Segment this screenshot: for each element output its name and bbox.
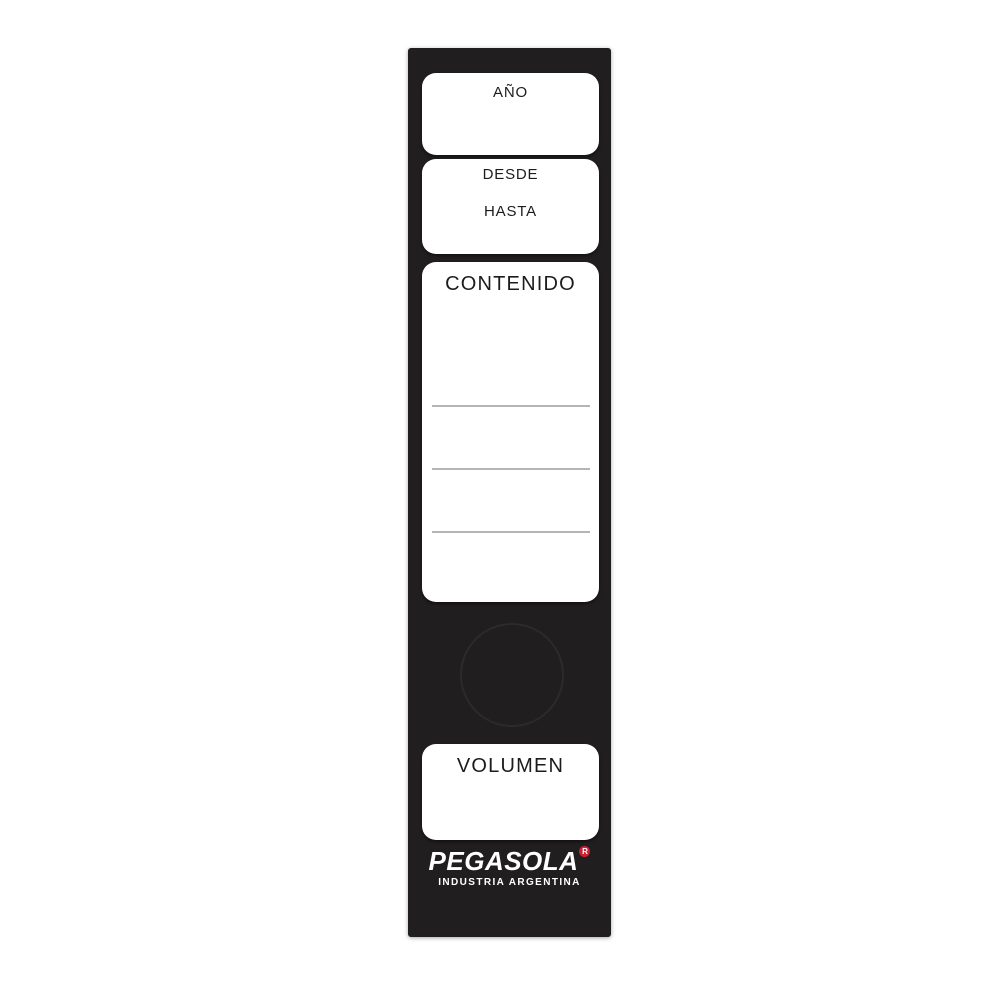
brand-block: PEGASOLAR INDUSTRIA ARGENTINA [408,848,611,888]
ruled-line [432,405,590,407]
ring-binder-emboss-circle [460,623,564,727]
brand-tagline: INDUSTRIA ARGENTINA [408,877,611,888]
ruled-line [432,468,590,470]
year-field-label: AÑO [422,84,599,101]
ruled-line [432,531,590,533]
volume-field-label: VOLUMEN [422,755,599,778]
binder-spine: AÑO DESDE HASTA CONTENIDO VOLUMEN PEGASO… [408,48,611,937]
brand-logo: PEGASOLA [429,848,579,874]
period-to-label: HASTA [422,203,599,220]
volume-field-box: VOLUMEN [422,744,599,840]
contents-field-box: CONTENIDO [422,262,599,602]
contents-field-label: CONTENIDO [422,273,599,296]
label-sheet: AÑO DESDE HASTA CONTENIDO VOLUMEN PEGASO… [0,0,1000,1000]
period-field-box: DESDE HASTA [422,159,599,254]
year-field-box: AÑO [422,73,599,155]
registered-trademark-icon: R [579,846,590,857]
period-from-label: DESDE [422,166,599,183]
